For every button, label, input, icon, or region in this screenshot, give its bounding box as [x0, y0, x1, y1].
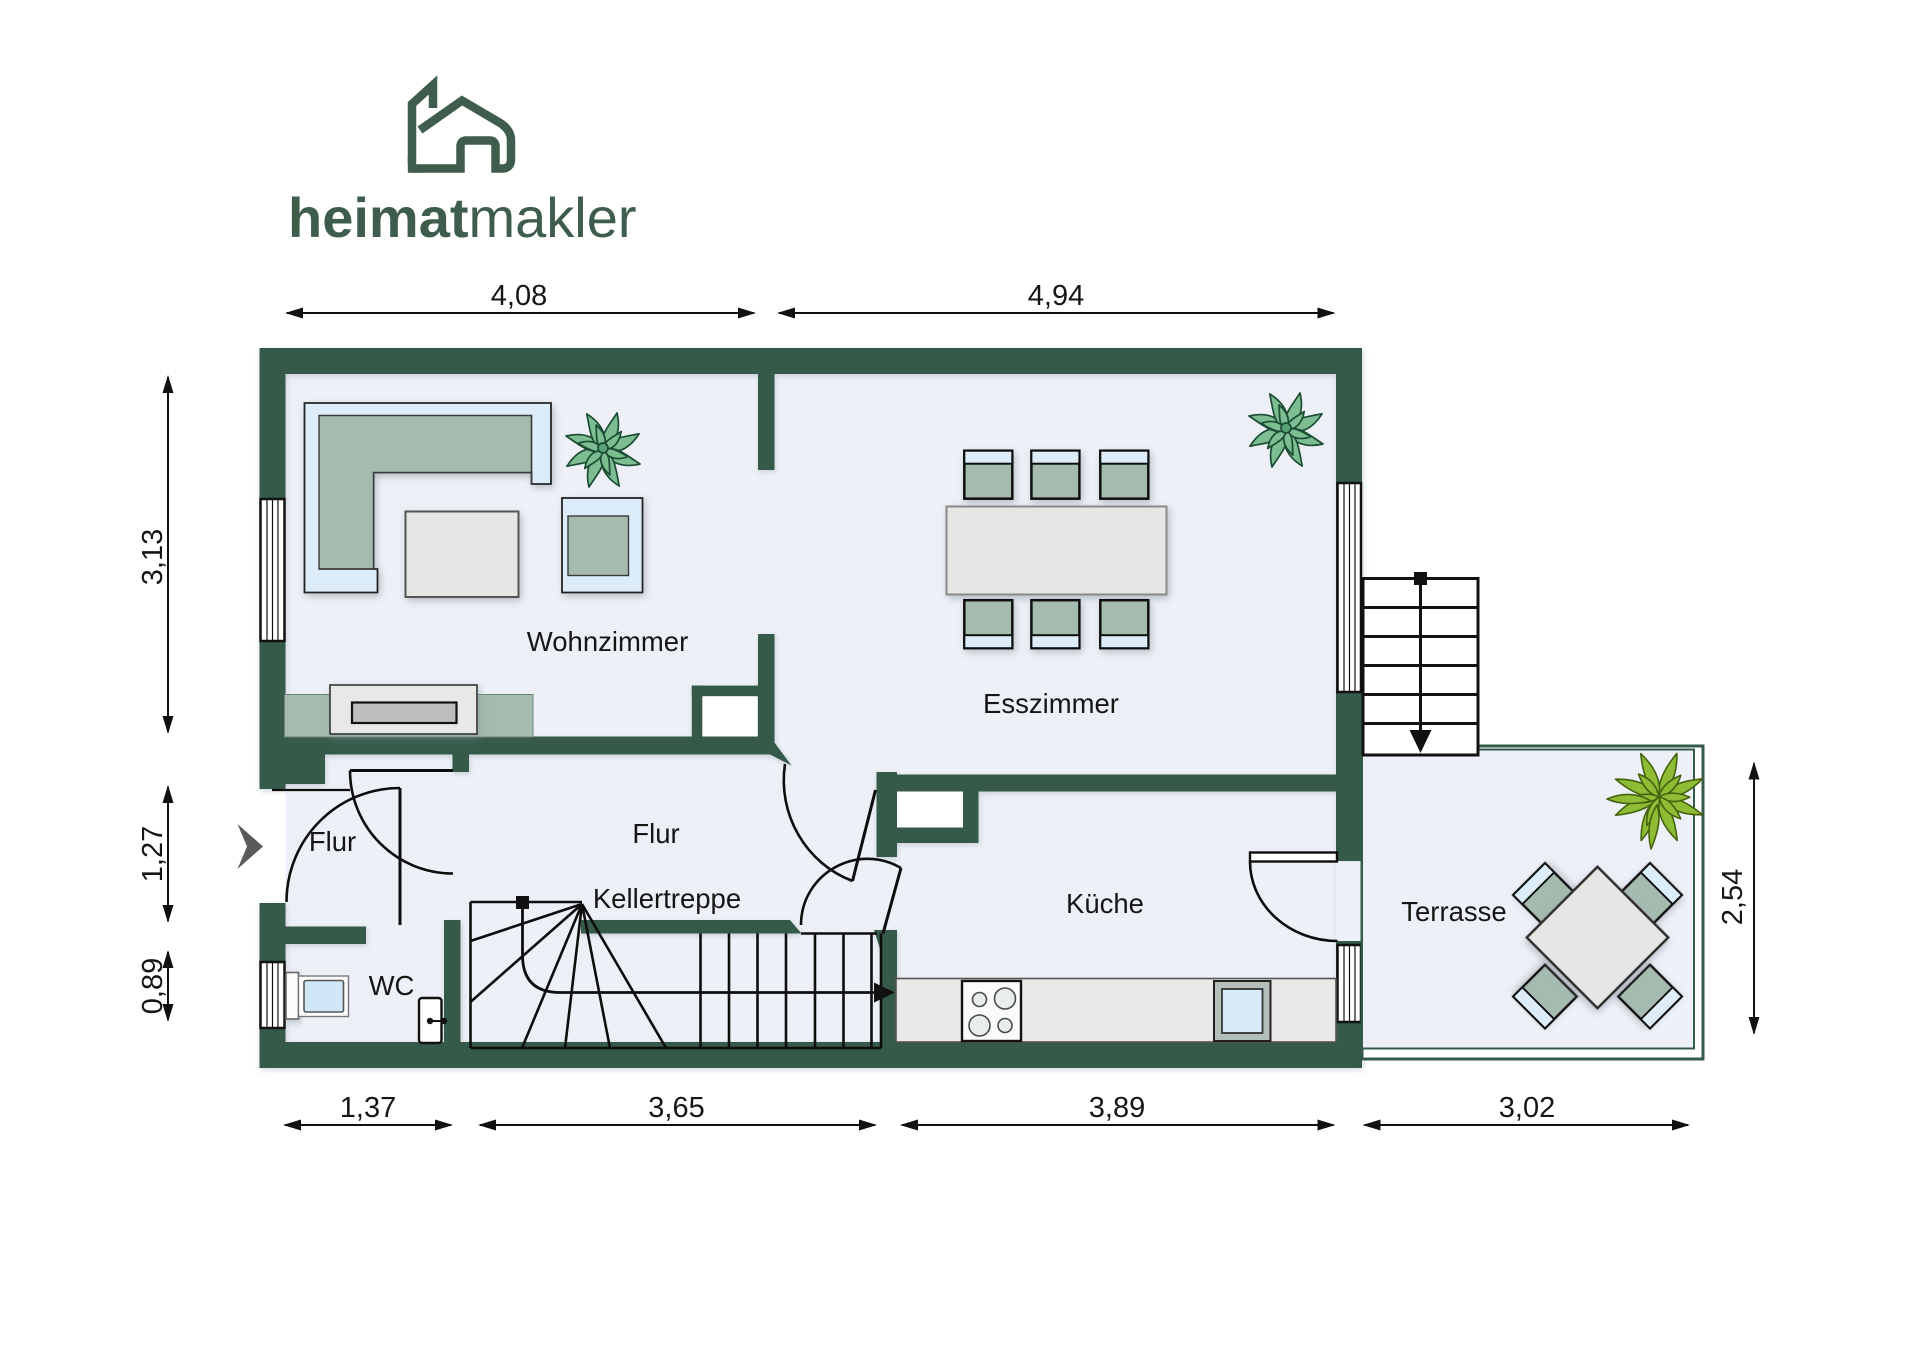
svg-text:Esszimmer: Esszimmer — [983, 688, 1119, 719]
svg-text:heimatmakler: heimatmakler — [288, 186, 637, 249]
svg-text:3,65: 3,65 — [648, 1092, 704, 1124]
svg-text:Terrasse: Terrasse — [1401, 896, 1506, 927]
svg-text:4,94: 4,94 — [1028, 280, 1084, 312]
svg-text:1,27: 1,27 — [137, 826, 169, 882]
svg-text:WC: WC — [369, 970, 415, 1001]
svg-text:Flur: Flur — [309, 826, 356, 857]
svg-text:Kellertreppe: Kellertreppe — [593, 883, 741, 914]
svg-text:Küche: Küche — [1066, 888, 1144, 919]
svg-text:Flur: Flur — [632, 818, 679, 849]
svg-text:4,08: 4,08 — [491, 280, 547, 312]
svg-text:3,02: 3,02 — [1499, 1092, 1555, 1124]
svg-text:1,37: 1,37 — [340, 1092, 396, 1124]
svg-text:0,89: 0,89 — [137, 958, 169, 1014]
svg-text:Wohnzimmer: Wohnzimmer — [527, 626, 688, 657]
svg-text:2,54: 2,54 — [1717, 869, 1749, 925]
svg-text:3,89: 3,89 — [1089, 1092, 1145, 1124]
svg-text:3,13: 3,13 — [137, 529, 169, 585]
